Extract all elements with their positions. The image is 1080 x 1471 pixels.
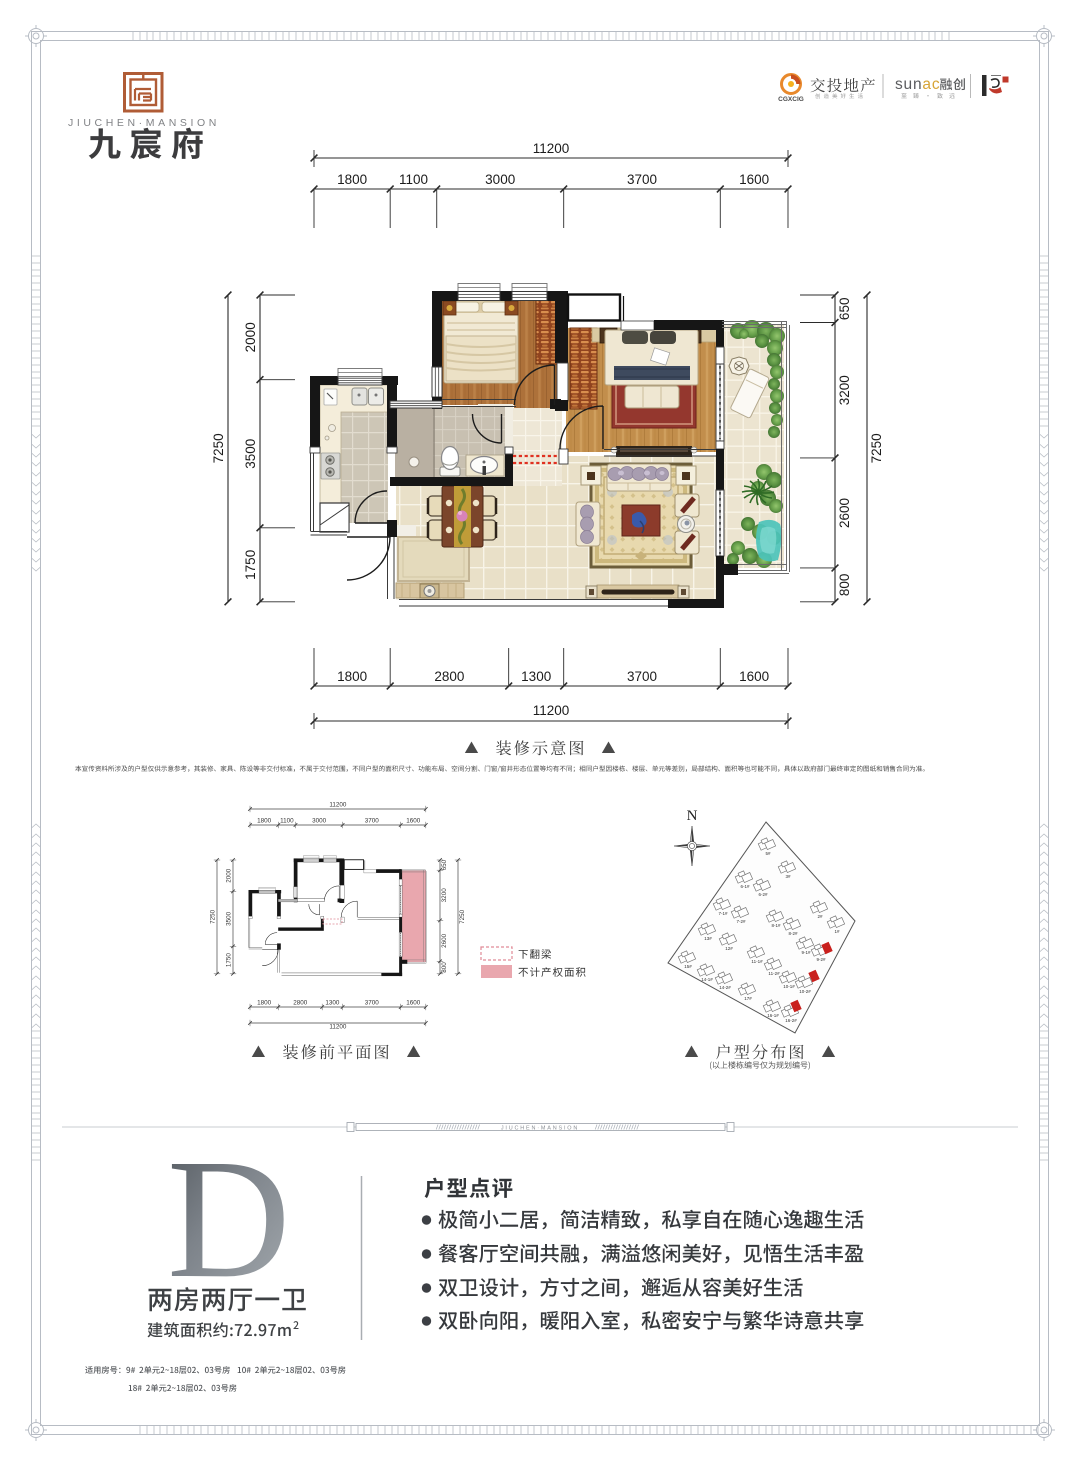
svg-text:11200: 11200	[533, 141, 570, 156]
svg-text:3200: 3200	[441, 888, 448, 903]
svg-text:3200: 3200	[837, 375, 852, 405]
svg-text:11-2#: 11-2#	[768, 971, 780, 976]
svg-text:3000: 3000	[312, 818, 327, 825]
svg-text:3000: 3000	[485, 172, 515, 187]
svg-text:3500: 3500	[243, 439, 258, 469]
svg-text:13#: 13#	[704, 936, 712, 941]
svg-text:sunac: sunac	[895, 76, 940, 93]
svg-text:7250: 7250	[211, 433, 226, 463]
svg-text:10-1#: 10-1#	[783, 984, 795, 989]
svg-text:3700: 3700	[365, 1000, 380, 1007]
svg-text:2000: 2000	[226, 868, 233, 883]
svg-text:11200: 11200	[329, 1024, 347, 1031]
svg-text:2#: 2#	[817, 914, 823, 919]
svg-text:7250: 7250	[459, 909, 466, 924]
svg-text:1100: 1100	[399, 172, 428, 187]
svg-text:650: 650	[441, 859, 448, 870]
svg-text:1600: 1600	[406, 818, 421, 825]
svg-text:1800: 1800	[337, 172, 367, 187]
svg-text:2800: 2800	[293, 1000, 308, 1007]
svg-text:11200: 11200	[329, 802, 347, 809]
svg-text:D: D	[167, 1124, 291, 1313]
svg-text:1300: 1300	[325, 1000, 340, 1007]
svg-text:1800: 1800	[257, 818, 272, 825]
svg-text:16-2#: 16-2#	[785, 1018, 797, 1023]
svg-text:9-1#: 9-1#	[801, 950, 811, 955]
svg-text:JIUCHEN·MANSION: JIUCHEN·MANSION	[68, 117, 220, 129]
svg-text:1100: 1100	[280, 818, 294, 825]
svg-text:12#: 12#	[725, 946, 733, 951]
svg-text:7250: 7250	[210, 909, 217, 924]
svg-text:2600: 2600	[441, 933, 448, 948]
svg-text:14-1#: 14-1#	[701, 977, 713, 982]
svg-text:14-2#: 14-2#	[719, 985, 731, 990]
svg-text:1300: 1300	[521, 669, 551, 684]
svg-text:1600: 1600	[739, 669, 769, 684]
svg-text:11200: 11200	[533, 703, 570, 718]
svg-text:11-1#: 11-1#	[751, 959, 763, 964]
svg-text:3700: 3700	[627, 669, 657, 684]
svg-text:800: 800	[441, 962, 448, 973]
svg-text:1600: 1600	[739, 172, 769, 187]
svg-text:3700: 3700	[365, 818, 380, 825]
svg-text:3700: 3700	[627, 172, 657, 187]
svg-text:2000: 2000	[243, 322, 258, 352]
svg-text:6-1#: 6-1#	[740, 884, 750, 889]
svg-text:1800: 1800	[337, 669, 367, 684]
svg-text:1800: 1800	[257, 1000, 272, 1007]
svg-text:7-1#: 7-1#	[718, 911, 728, 916]
svg-text:1600: 1600	[406, 1000, 421, 1007]
svg-text:N: N	[687, 808, 698, 824]
svg-text:1750: 1750	[226, 953, 233, 968]
svg-text:5#: 5#	[765, 851, 771, 856]
svg-text:10-2#: 10-2#	[799, 989, 811, 994]
svg-text:JIUCHEN·MANSION: JIUCHEN·MANSION	[501, 1126, 579, 1132]
svg-text:6-2#: 6-2#	[758, 892, 768, 897]
svg-text:8-2#: 8-2#	[788, 931, 798, 936]
svg-text:CGXCIG: CGXCIG	[778, 96, 804, 103]
svg-text:3#: 3#	[785, 874, 791, 879]
svg-text:650: 650	[837, 298, 852, 321]
svg-text:2800: 2800	[434, 669, 464, 684]
svg-text:17#: 17#	[744, 996, 752, 1001]
svg-text:800: 800	[837, 574, 852, 597]
svg-text:16-1#: 16-1#	[767, 1013, 779, 1018]
svg-text:7250: 7250	[869, 433, 884, 463]
svg-text:3500: 3500	[226, 911, 233, 926]
svg-text:1#: 1#	[834, 929, 840, 934]
svg-text:2600: 2600	[837, 498, 852, 528]
svg-text:15#: 15#	[684, 964, 692, 969]
svg-text:8-1#: 8-1#	[771, 923, 781, 928]
svg-text:1750: 1750	[243, 550, 258, 580]
svg-text:9-2#: 9-2#	[816, 957, 826, 962]
svg-text:7-2#: 7-2#	[736, 919, 746, 924]
